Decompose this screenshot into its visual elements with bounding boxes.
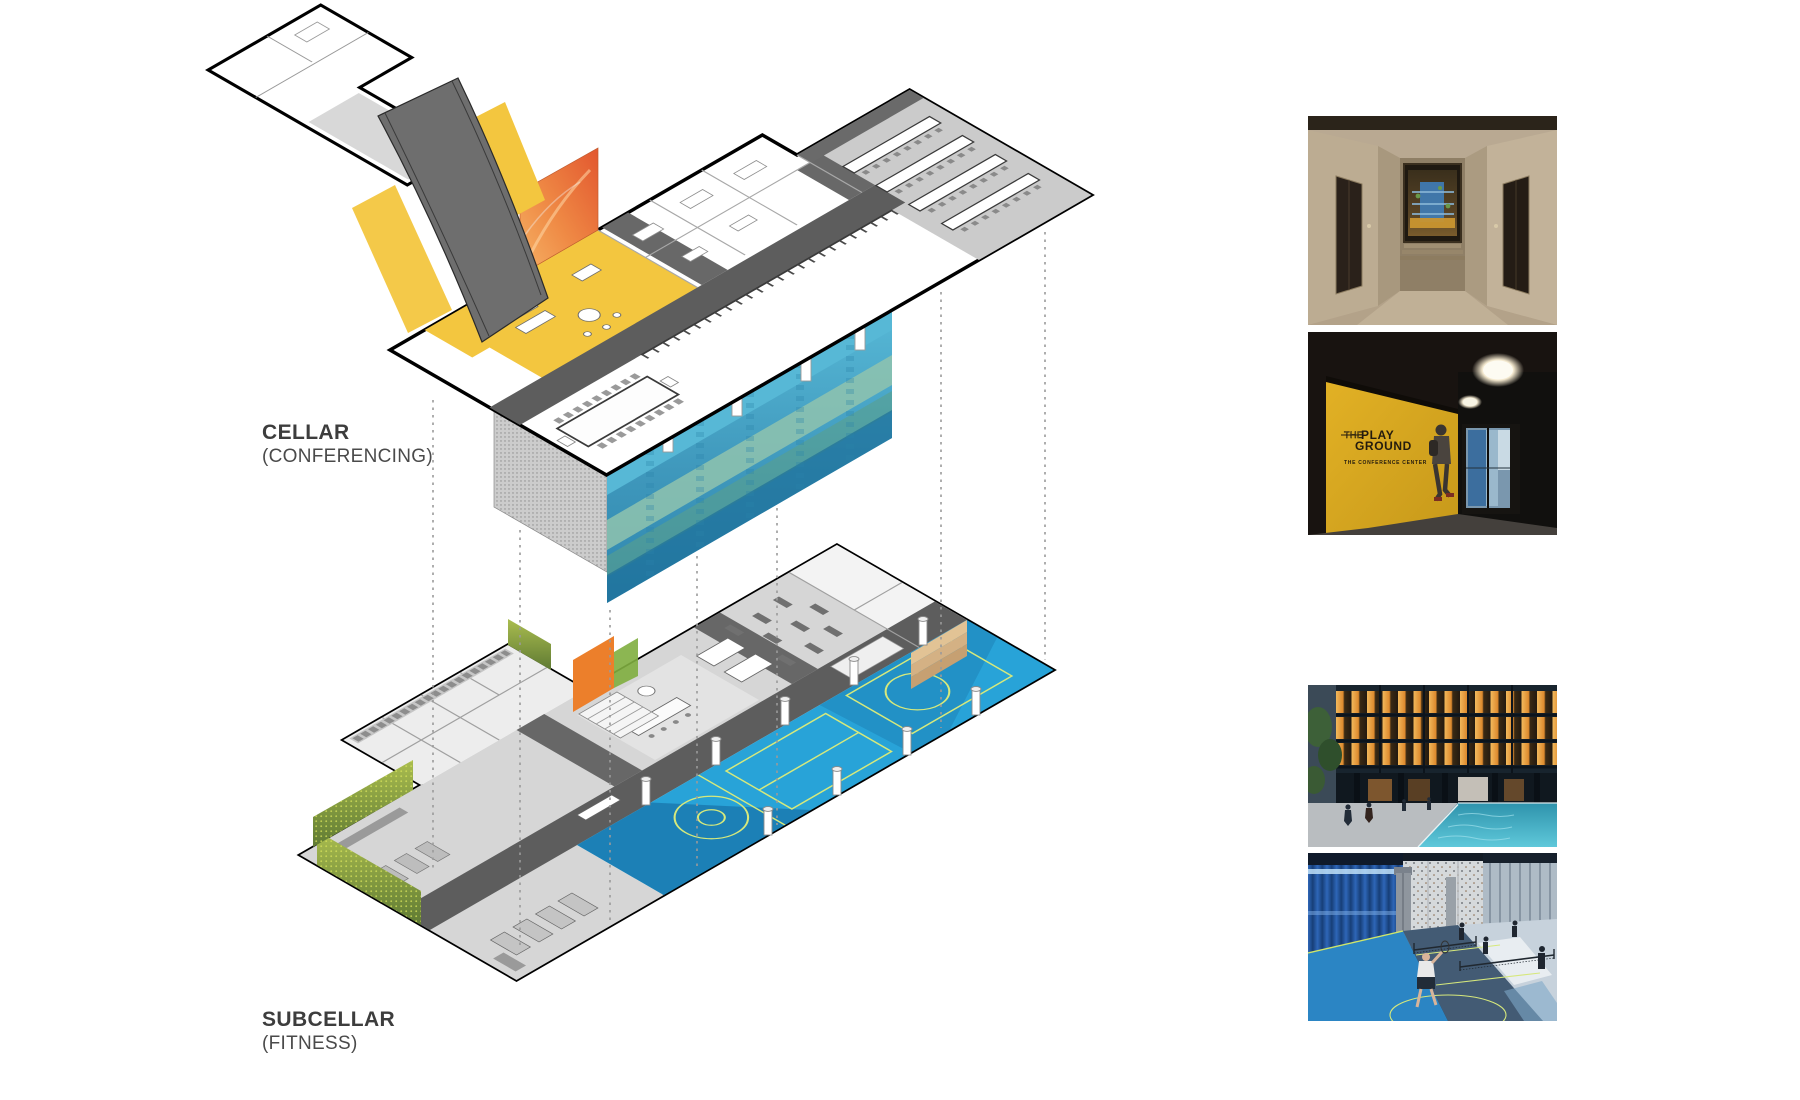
office-facade (1336, 685, 1557, 773)
colonnade (1336, 773, 1557, 803)
elevator-lobby-photo (1308, 116, 1557, 325)
subcellar-label-name: SUBCELLAR (262, 1008, 395, 1032)
climbing-wall (1403, 853, 1483, 933)
cellar-plate (208, 5, 1091, 475)
glass-doorway (1460, 424, 1522, 516)
sports-hall-photo (1308, 853, 1557, 1021)
exploded-axonometric-diagram: CELLAR (CONFERENCING) SUBCELLAR (FITNESS… (0, 0, 1200, 1100)
display-vitrine (1400, 164, 1465, 260)
diagram-svg (0, 0, 1200, 1100)
cellar-label-sub: (CONFERENCING) (262, 445, 433, 468)
page: CELLAR (CONFERENCING) SUBCELLAR (FITNESS… (0, 0, 1800, 1100)
plaza-pool-photo (1308, 685, 1557, 847)
cellar-label-name: CELLAR (262, 421, 433, 445)
conference-center-entrance-photo: THE PLAY GROUND THE CONFERENCE CENTER (1308, 332, 1557, 535)
logo-ground: GROUND (1355, 439, 1412, 453)
subcellar-label-sub: (FITNESS) (262, 1032, 395, 1055)
escalator-ramp (352, 78, 548, 342)
cellar-label: CELLAR (CONFERENCING) (262, 421, 433, 468)
subcellar-label: SUBCELLAR (FITNESS) (262, 1008, 395, 1055)
logo-tagline: THE CONFERENCE CENTER (1344, 460, 1427, 466)
